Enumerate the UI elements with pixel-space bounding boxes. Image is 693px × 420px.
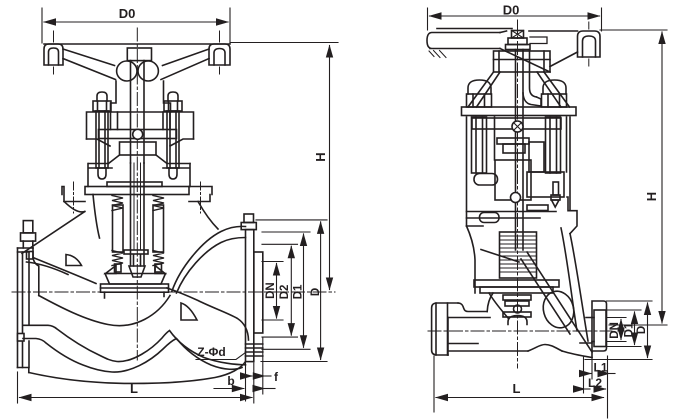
svg-text:H: H <box>644 192 659 201</box>
svg-text:L: L <box>513 381 521 396</box>
svg-text:Z-Φd: Z-Φd <box>197 345 226 359</box>
svg-text:D1: D1 <box>624 322 636 337</box>
svg-text:D: D <box>636 326 648 334</box>
svg-text:D0: D0 <box>503 3 520 18</box>
svg-text:DN: DN <box>609 322 621 339</box>
svg-text:D0: D0 <box>119 6 136 21</box>
svg-text:D2: D2 <box>279 285 291 300</box>
svg-text:DN: DN <box>265 282 277 299</box>
svg-text:L: L <box>130 381 138 396</box>
svg-text:L2: L2 <box>588 376 602 390</box>
svg-text:H: H <box>313 152 328 161</box>
svg-text:L1: L1 <box>593 361 607 375</box>
svg-text:D1: D1 <box>293 284 305 299</box>
svg-text:f: f <box>274 370 279 384</box>
svg-text:b: b <box>227 374 234 388</box>
svg-text:D: D <box>310 288 322 296</box>
